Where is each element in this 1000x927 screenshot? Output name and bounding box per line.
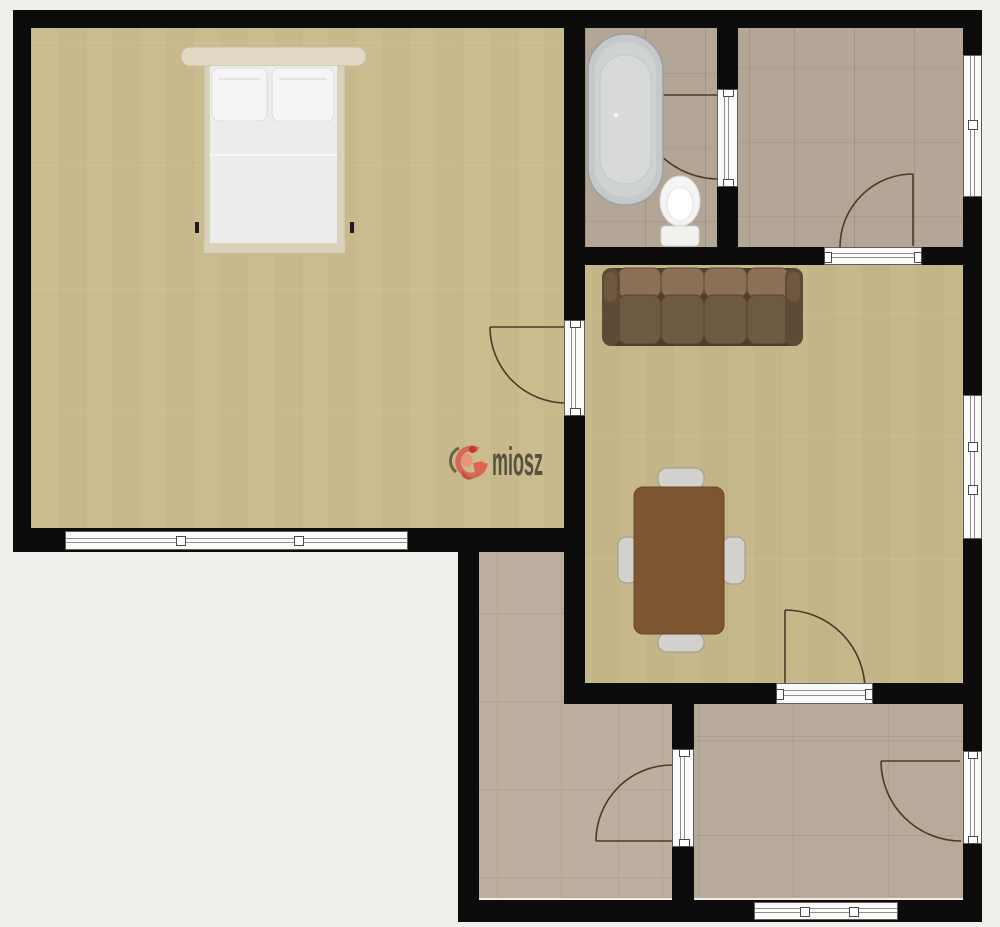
svg-text:miosz: miosz <box>492 439 543 484</box>
